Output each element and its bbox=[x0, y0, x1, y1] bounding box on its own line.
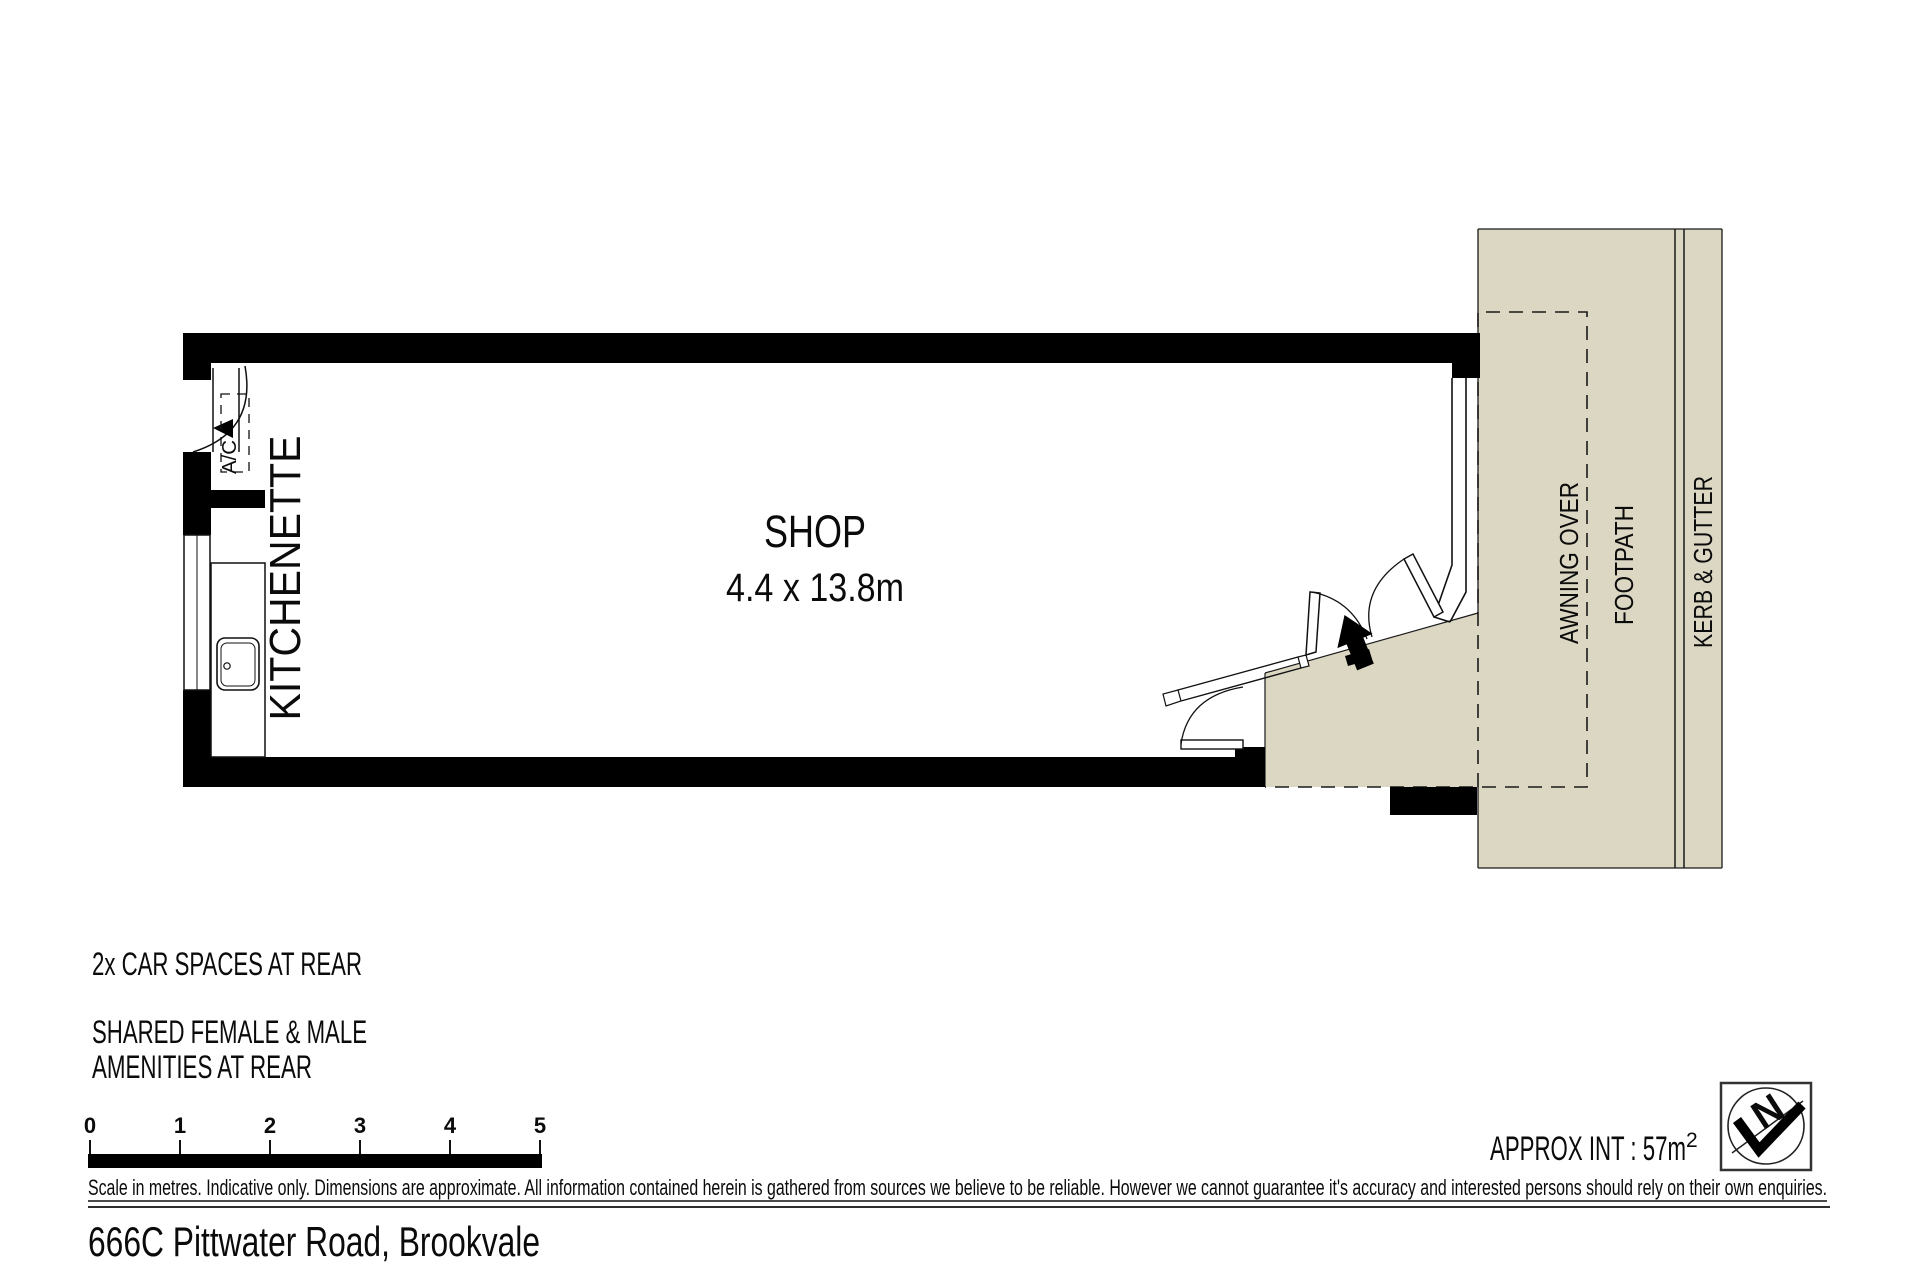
north-indicator: N bbox=[1721, 1083, 1811, 1170]
ac-label: A/C bbox=[219, 440, 241, 474]
footpath-label: FOOTPATH bbox=[1609, 505, 1639, 625]
entry-paving-wedge bbox=[1265, 613, 1478, 787]
scale-tick-marks bbox=[90, 1140, 540, 1154]
car-spaces-note: 2x CAR SPACES AT REAR bbox=[92, 946, 362, 982]
kerb-gutter-label: KERB & GUTTER bbox=[1688, 476, 1718, 648]
amenities-note-line2: AMENITIES AT REAR bbox=[92, 1049, 312, 1085]
entry-door-right-leaf bbox=[1404, 554, 1443, 617]
side-door-leaf bbox=[1181, 740, 1243, 749]
disclaimer-text: Scale in metres. Indicative only. Dimens… bbox=[88, 1175, 1827, 1200]
shop-dimensions: 4.4 x 13.8m bbox=[726, 566, 904, 610]
kitchenette: KITCHENETTE bbox=[211, 436, 310, 758]
room-labels: SHOP 4.4 x 13.8m AWNING OVER FOOTPATH KE… bbox=[726, 476, 1718, 648]
sink-bowl bbox=[221, 643, 255, 686]
approx-area-text: APPROX INT : 57m2 bbox=[1490, 1129, 1698, 1168]
scale-tick-0: 0 bbox=[84, 1113, 96, 1138]
scale-bar: 0 1 2 3 4 5 bbox=[84, 1113, 546, 1168]
scale-tick-1: 1 bbox=[174, 1113, 186, 1138]
left-wall-mid bbox=[183, 452, 211, 535]
area-annotation: APPROX INT : 57m2 bbox=[1490, 1129, 1698, 1168]
awning-label: AWNING OVER bbox=[1554, 482, 1584, 644]
floorplan-page: A/C KITCHENETTE SHOP 4.4 x 13.8m AWNING … bbox=[0, 0, 1920, 1280]
scale-tick-4: 4 bbox=[444, 1113, 457, 1138]
floorplan-drawing: A/C KITCHENETTE SHOP 4.4 x 13.8m AWNING … bbox=[0, 0, 1920, 1280]
bottom-right-wall-bar bbox=[1390, 787, 1477, 815]
top-wall bbox=[183, 333, 1480, 378]
approx-area-main: APPROX INT : 57m bbox=[1490, 1130, 1686, 1168]
footpath-paving bbox=[1265, 229, 1722, 868]
entry-door-right-swing bbox=[1369, 559, 1404, 637]
amenities-note-line1: SHARED FEMALE & MALE bbox=[92, 1014, 367, 1050]
footer: Scale in metres. Indicative only. Dimens… bbox=[88, 1175, 1830, 1265]
side-door-swing bbox=[1181, 687, 1243, 744]
left-window bbox=[184, 535, 210, 690]
door-jambs bbox=[213, 368, 239, 452]
footpath-strip bbox=[1478, 229, 1722, 868]
scale-tick-2: 2 bbox=[264, 1113, 276, 1138]
scale-bar-rule bbox=[88, 1154, 542, 1168]
left-pier bbox=[183, 363, 211, 380]
notes: 2x CAR SPACES AT REAR SHARED FEMALE & MA… bbox=[92, 946, 367, 1085]
glazing-lines bbox=[1434, 378, 1466, 622]
scale-tick-3: 3 bbox=[354, 1113, 366, 1138]
kitchenette-label: KITCHENETTE bbox=[261, 436, 310, 721]
scale-tick-5: 5 bbox=[534, 1113, 546, 1138]
bottom-wall bbox=[183, 747, 1265, 787]
entry-door-left-leaf bbox=[1306, 592, 1320, 655]
shop-label: SHOP bbox=[764, 506, 866, 557]
approx-area-sup: 2 bbox=[1686, 1129, 1698, 1152]
door-swing-arrowhead bbox=[213, 419, 233, 438]
kitchenette-stub-wall bbox=[211, 490, 265, 508]
property-address: 666C Pittwater Road, Brookvale bbox=[88, 1218, 540, 1265]
